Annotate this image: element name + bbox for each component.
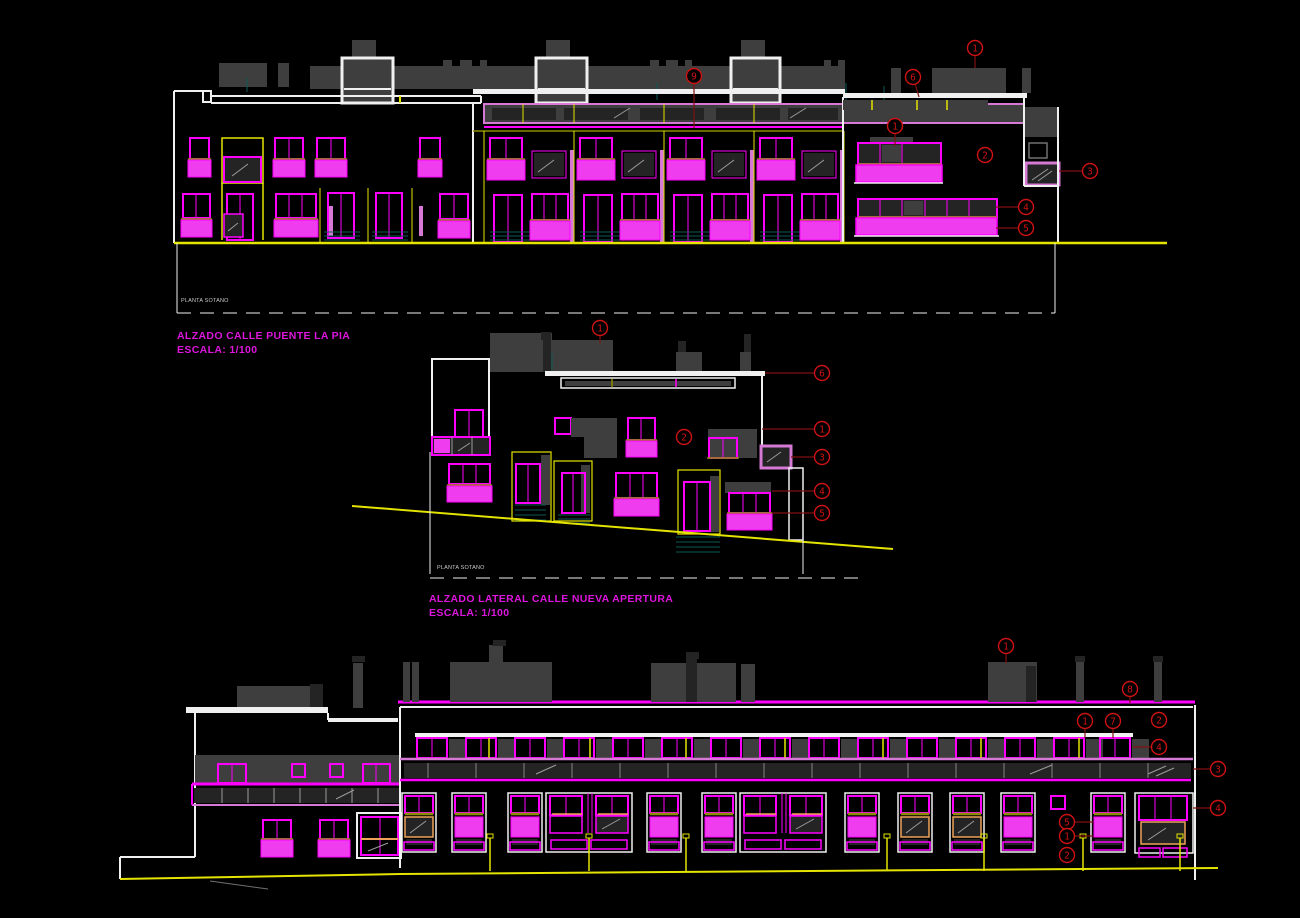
svg-text:3: 3 — [1087, 166, 1093, 177]
callout-3: 3 — [1059, 164, 1098, 179]
svg-text:2: 2 — [681, 432, 687, 443]
e3-drainpipe — [884, 834, 890, 871]
e3-ribbon-window — [809, 738, 858, 758]
e3-ribbon-window — [564, 738, 613, 758]
e3-drainpipe — [683, 834, 689, 871]
svg-text:4: 4 — [1023, 202, 1029, 213]
elevation-title-text: ALZADO CALLE PUENTE LA PIA — [177, 330, 350, 344]
e3-ribbon-window — [907, 738, 956, 758]
callout-4: 4 — [772, 484, 830, 499]
svg-text:8: 8 — [1127, 684, 1133, 695]
e3-window-a — [1091, 793, 1125, 852]
svg-text:3: 3 — [819, 452, 825, 463]
e3-ribbon-window — [1100, 738, 1149, 758]
svg-text:6: 6 — [910, 72, 916, 83]
svg-text:2: 2 — [982, 150, 988, 161]
callout-2: 2 — [677, 430, 692, 445]
elevation-scale-text: ESCALA: 1/100 — [429, 607, 673, 621]
e3-window-double — [740, 793, 826, 852]
e3-window-a — [845, 793, 879, 852]
elevation-title-text: ALZADO LATERAL CALLE NUEVA APERTURA — [429, 593, 673, 607]
e1-module — [574, 131, 664, 243]
basement-level-label-top: PLANTA SOTANO — [181, 298, 229, 304]
e3-window-b — [402, 793, 436, 852]
svg-text:4: 4 — [1156, 742, 1162, 753]
callout-1: 1 — [968, 41, 983, 69]
e1-module — [484, 131, 574, 243]
elevation-title-middle: ALZADO LATERAL CALLE NUEVA APERTURA ESCA… — [429, 593, 673, 620]
e3-ribbon-window — [466, 738, 515, 758]
elevation-calle-puente-la-pia: 91612345 — [174, 40, 1167, 313]
svg-text:9: 9 — [691, 71, 697, 82]
callout-8: 8 — [1123, 682, 1138, 704]
e3-ribbon-window — [515, 738, 564, 758]
e3-window-b — [950, 793, 984, 852]
callout-3: 3 — [791, 450, 830, 465]
callout-5: 5 — [1060, 815, 1094, 830]
svg-text:5: 5 — [1023, 223, 1029, 234]
callout-4: 4 — [996, 200, 1034, 215]
svg-text:5: 5 — [1064, 817, 1070, 828]
e3-window-a — [647, 793, 681, 852]
cad-drawing-stage: 91612345161345218172434512 ALZADO CALLE … — [0, 0, 1300, 918]
svg-text:6: 6 — [819, 368, 825, 379]
svg-text:4: 4 — [819, 486, 825, 497]
e3-ribbon-window — [711, 738, 760, 758]
e3-ribbon-window — [417, 738, 466, 758]
svg-text:1: 1 — [1064, 831, 1070, 842]
elevation-rear: 18172434512 — [120, 639, 1226, 890]
callout-2: 2 — [978, 148, 993, 163]
e3-window-b — [898, 793, 932, 852]
e3-window-a — [452, 793, 486, 852]
callout-1: 1 — [999, 639, 1014, 664]
e3-ribbon-window — [613, 738, 662, 758]
basement-level-label-middle: PLANTA SOTANO — [437, 565, 485, 571]
callout-6: 6 — [765, 366, 830, 381]
svg-text:2: 2 — [1156, 715, 1162, 726]
svg-text:7: 7 — [1110, 716, 1116, 727]
e3-ribbon-window — [1005, 738, 1054, 758]
callout-3: 3 — [1193, 762, 1226, 777]
cad-canvas: 91612345161345218172434512 — [0, 0, 1300, 918]
e1-module — [664, 131, 754, 243]
svg-text:4: 4 — [1215, 803, 1221, 814]
callout-6: 6 — [906, 70, 921, 98]
svg-text:1: 1 — [892, 121, 898, 132]
callout-2: 2 — [1060, 848, 1075, 863]
elevation-lateral-calle-nueva-apertura: 1613452 — [352, 321, 893, 579]
callout-5: 5 — [996, 221, 1034, 236]
e3-window-a — [702, 793, 736, 852]
e3-window-a — [1001, 793, 1035, 852]
svg-text:1: 1 — [1082, 716, 1088, 727]
elevation-title-top: ALZADO CALLE PUENTE LA PIA ESCALA: 1/100 — [177, 330, 350, 357]
svg-text:1: 1 — [1003, 641, 1009, 652]
callout-1: 1 — [762, 422, 830, 437]
callout-4: 4 — [1193, 801, 1226, 816]
svg-text:3: 3 — [1215, 764, 1221, 775]
e1-module — [754, 131, 844, 243]
e3-drainpipe — [1080, 834, 1086, 871]
e3-drainpipe — [487, 834, 493, 871]
callout-1: 1 — [593, 321, 608, 344]
svg-text:2: 2 — [1064, 850, 1070, 861]
elevation-scale-text: ESCALA: 1/100 — [177, 344, 350, 358]
callout-1: 1 — [1060, 829, 1094, 844]
callout-5: 5 — [772, 506, 830, 521]
e3-window-a — [508, 793, 542, 852]
svg-text:1: 1 — [819, 424, 825, 435]
svg-text:5: 5 — [819, 508, 825, 519]
svg-text:1: 1 — [597, 323, 603, 334]
callout-2: 2 — [1152, 713, 1167, 728]
svg-text:1: 1 — [972, 43, 978, 54]
